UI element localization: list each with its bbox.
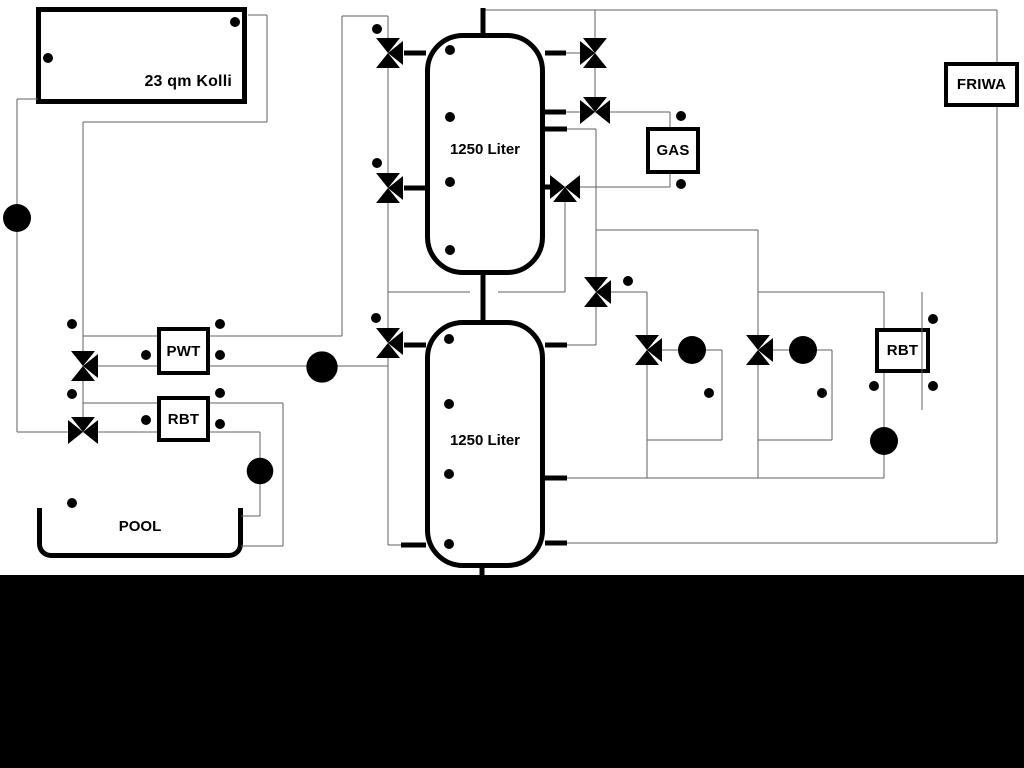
three-way-valve-icon [550,175,580,202]
three-way-valve-icon [376,328,403,358]
temperature-sensor-icon [215,319,225,337]
temperature-sensor-icon [817,388,835,398]
temperature-sensor-icon [920,381,938,391]
three-way-valve-icon [746,335,773,365]
three-way-valve-icon [580,38,607,68]
pump-icon [678,336,706,364]
pump-icon [306,351,337,382]
rbt-right-heat-exchanger-box: RBT [875,328,930,373]
friwa-label: FRIWA [957,76,1006,93]
bottom-black-mask [0,575,1024,768]
pump-icon [3,204,31,232]
solar-collector-box: 23 qm Kolli [36,7,247,104]
buffer-tank-bottom-label: 1250 Liter [430,432,540,449]
pump-icon [247,458,274,485]
temperature-sensor-icon [67,319,85,329]
pool-label: POOL [42,518,238,535]
three-way-valve-icon [580,97,610,124]
schematic-canvas: 23 qm Kolli 1250 Liter 1250 Liter PWT RB… [0,0,1024,768]
temperature-sensor-icon [141,415,151,433]
temperature-sensor-icon [67,389,85,399]
pump-icon [789,336,817,364]
temperature-sensor-icon [869,381,887,391]
gas-label: GAS [656,142,689,159]
temperature-sensor-icon [668,111,686,121]
pool-basin: POOL [37,508,243,558]
three-way-valve-icon [376,173,403,203]
temperature-sensor-icon [372,158,390,168]
rbt-left-label: RBT [168,411,199,428]
buffer-tank-top-label: 1250 Liter [430,141,540,158]
three-way-valve-icon [584,277,611,307]
friwa-station-box: FRIWA [944,62,1019,107]
temperature-sensor-icon [141,350,151,368]
buffer-tank-top: 1250 Liter [425,33,545,275]
pwt-label: PWT [167,343,201,360]
rbt-left-heat-exchanger-box: RBT [157,396,210,442]
temperature-sensor-icon [668,179,686,189]
temperature-sensor-icon [215,388,225,406]
temperature-sensor-icon [704,388,722,398]
temperature-sensor-icon [371,313,389,323]
gas-boiler-box: GAS [646,127,700,174]
pwt-heat-exchanger-box: PWT [157,327,210,375]
temperature-sensor-icon [215,350,225,368]
buffer-tank-bottom: 1250 Liter [425,320,545,568]
three-way-valve-icon [68,417,98,444]
temperature-sensor-icon [372,24,390,34]
three-way-valve-icon [71,351,98,381]
temperature-sensor-icon [920,314,938,324]
three-way-valve-icon [376,38,403,68]
three-way-valve-icon [635,335,662,365]
rbt-right-label: RBT [887,342,918,359]
solar-collector-label: 23 qm Kolli [144,73,232,91]
temperature-sensor-icon [623,276,633,294]
pump-icon [870,427,898,455]
temperature-sensor-icon [215,419,225,437]
